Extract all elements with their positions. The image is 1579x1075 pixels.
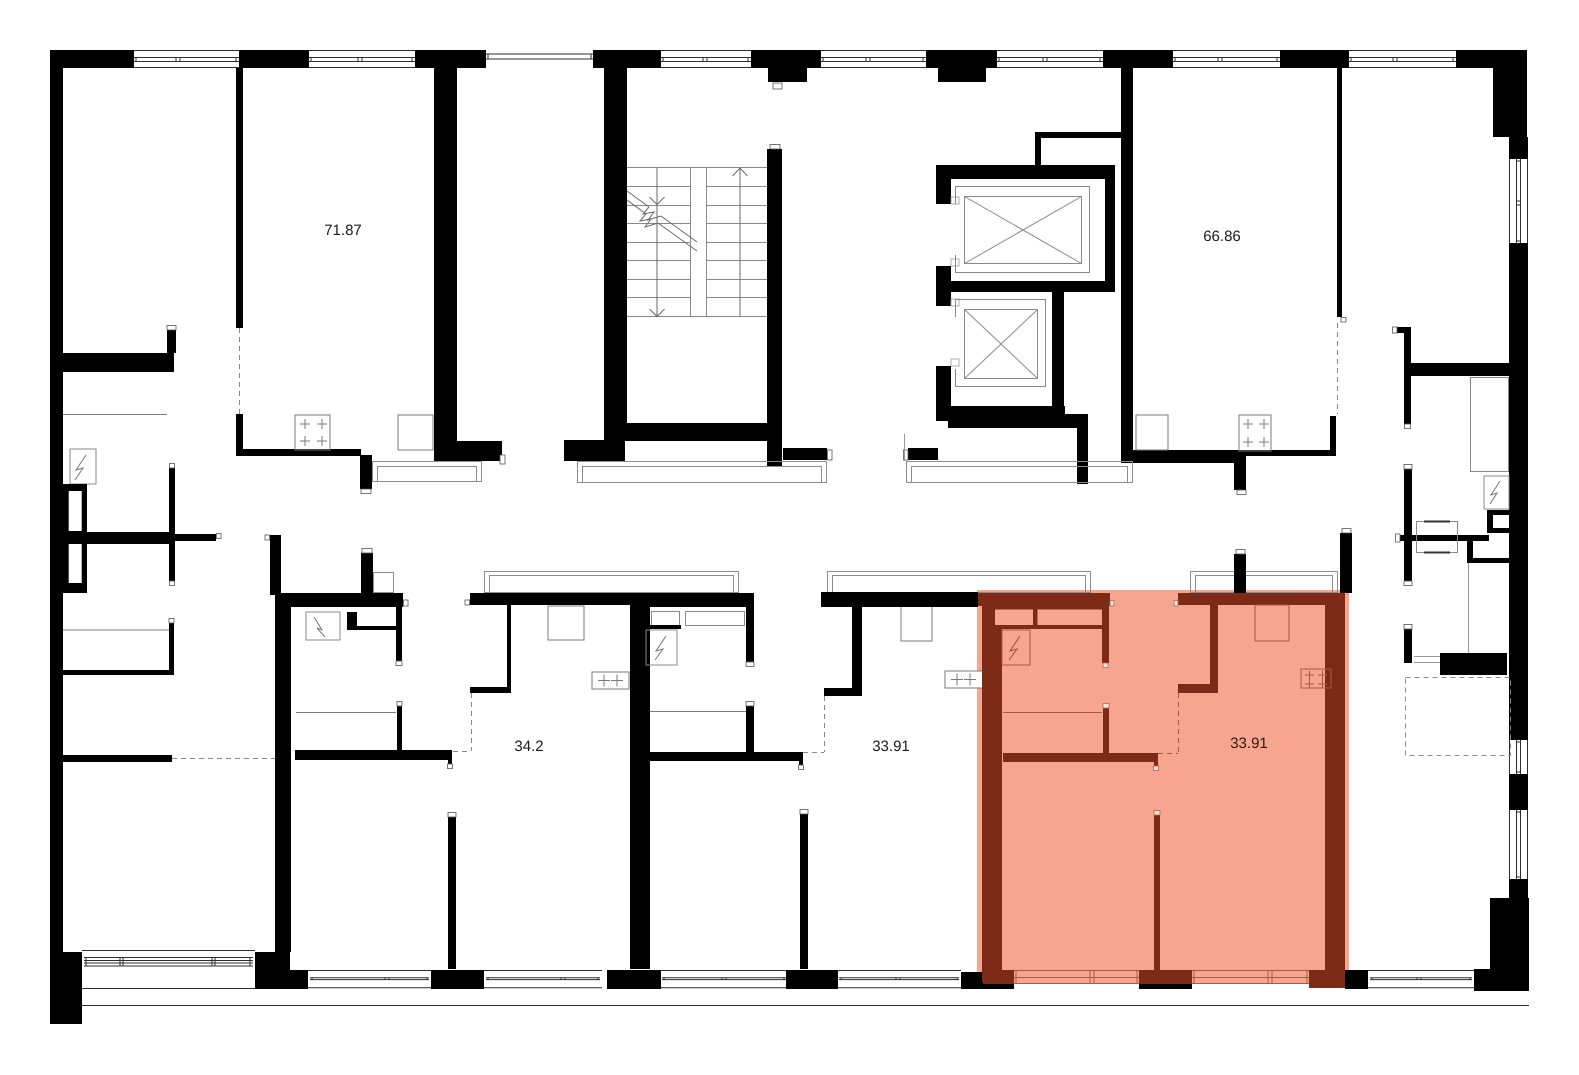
svg-text:66.86: 66.86 bbox=[1203, 228, 1241, 245]
svg-text:34.2: 34.2 bbox=[514, 738, 543, 755]
svg-text:71.87: 71.87 bbox=[324, 222, 362, 239]
svg-text:33.91: 33.91 bbox=[872, 738, 910, 755]
svg-text:33.91: 33.91 bbox=[1230, 735, 1268, 752]
